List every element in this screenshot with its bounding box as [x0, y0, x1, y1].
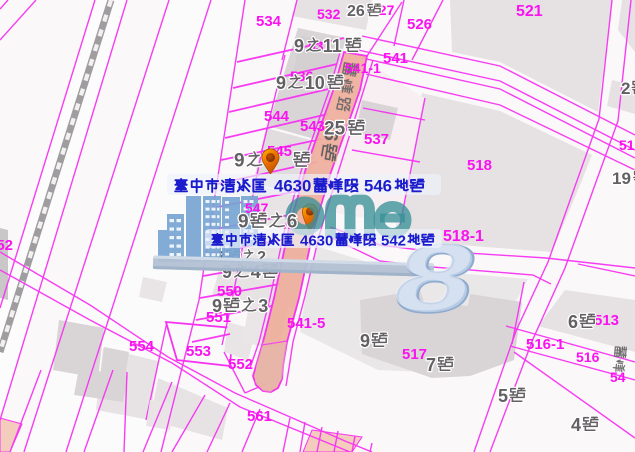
svg-text:54: 54	[610, 369, 626, 385]
svg-text:513: 513	[594, 312, 619, 329]
svg-text:544: 544	[264, 108, 290, 125]
svg-text:552: 552	[0, 237, 13, 254]
svg-text:521: 521	[516, 3, 543, 20]
svg-text:526: 526	[407, 16, 432, 33]
svg-text:518: 518	[467, 157, 492, 174]
svg-text:554: 554	[129, 338, 155, 355]
svg-text:9: 9	[360, 331, 370, 351]
svg-text:7: 7	[426, 355, 436, 375]
svg-text:6: 6	[568, 312, 578, 332]
svg-text:546: 546	[364, 177, 392, 196]
svg-text:51: 51	[619, 137, 635, 153]
svg-text:537: 537	[364, 131, 389, 148]
svg-text:543: 543	[300, 118, 325, 135]
svg-text:9: 9	[276, 73, 286, 93]
svg-text:9: 9	[234, 151, 245, 172]
svg-text:2: 2	[621, 79, 630, 98]
svg-text:553: 553	[186, 343, 211, 360]
svg-text:25: 25	[324, 119, 346, 140]
svg-text:10: 10	[305, 73, 325, 93]
svg-text:541-5: 541-5	[287, 315, 325, 332]
svg-text:518-1: 518-1	[443, 228, 484, 245]
svg-text:541-1: 541-1	[345, 60, 381, 76]
svg-text:561: 561	[247, 408, 272, 425]
svg-text:516: 516	[576, 349, 600, 365]
svg-text:4: 4	[571, 415, 581, 435]
svg-text:516-1: 516-1	[526, 336, 564, 353]
svg-text:5: 5	[498, 386, 508, 406]
svg-text:11: 11	[323, 36, 342, 56]
svg-text:534: 534	[256, 13, 282, 30]
svg-text:542: 542	[381, 232, 406, 249]
svg-text:552: 552	[228, 356, 253, 373]
svg-text:9: 9	[212, 296, 222, 316]
svg-text:3: 3	[258, 296, 268, 316]
svg-text:4630: 4630	[300, 232, 333, 249]
svg-text:9: 9	[294, 36, 304, 56]
svg-text:532: 532	[317, 6, 341, 22]
svg-text:541: 541	[383, 50, 408, 67]
svg-text:26: 26	[347, 3, 365, 20]
svg-text:19: 19	[612, 169, 631, 188]
svg-text:4630: 4630	[274, 177, 311, 196]
svg-text:517: 517	[402, 346, 427, 363]
